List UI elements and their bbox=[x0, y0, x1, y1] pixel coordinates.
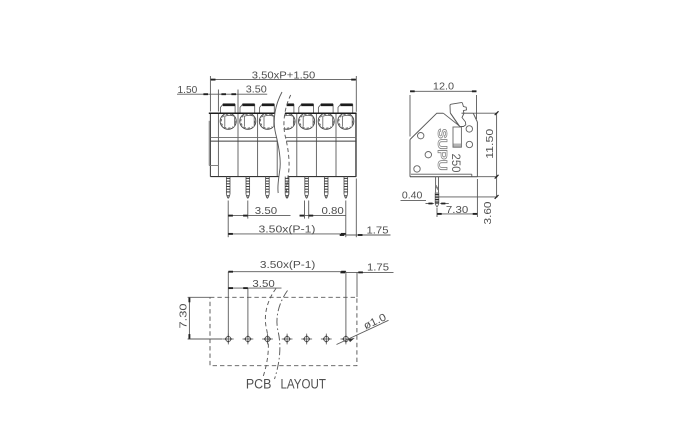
svg-text:3.50x(P-1): 3.50x(P-1) bbox=[259, 223, 316, 235]
svg-text:3.50xP+1.50: 3.50xP+1.50 bbox=[252, 70, 316, 82]
svg-text:250: 250 bbox=[449, 154, 461, 173]
svg-text:3.60: 3.60 bbox=[482, 201, 494, 224]
svg-text:3.50x(P-1): 3.50x(P-1) bbox=[260, 259, 316, 271]
svg-text:3.50: 3.50 bbox=[252, 278, 274, 290]
svg-text:1.75: 1.75 bbox=[367, 262, 389, 274]
svg-text:7.30: 7.30 bbox=[446, 204, 468, 216]
svg-text:SUPU: SUPU bbox=[435, 129, 449, 171]
svg-text:1.50: 1.50 bbox=[178, 84, 198, 96]
svg-text:3.50: 3.50 bbox=[255, 205, 277, 217]
svg-text:LAYOUT: LAYOUT bbox=[281, 377, 327, 393]
svg-text:12.0: 12.0 bbox=[433, 80, 454, 92]
svg-text:7.30: 7.30 bbox=[178, 303, 190, 328]
svg-text:11.50: 11.50 bbox=[484, 129, 496, 159]
svg-text:3.50: 3.50 bbox=[246, 83, 267, 95]
svg-text:PCB: PCB bbox=[246, 377, 272, 393]
svg-text:0.40: 0.40 bbox=[402, 189, 423, 201]
svg-text:1.75: 1.75 bbox=[367, 225, 389, 237]
svg-text:0.80: 0.80 bbox=[322, 205, 344, 217]
